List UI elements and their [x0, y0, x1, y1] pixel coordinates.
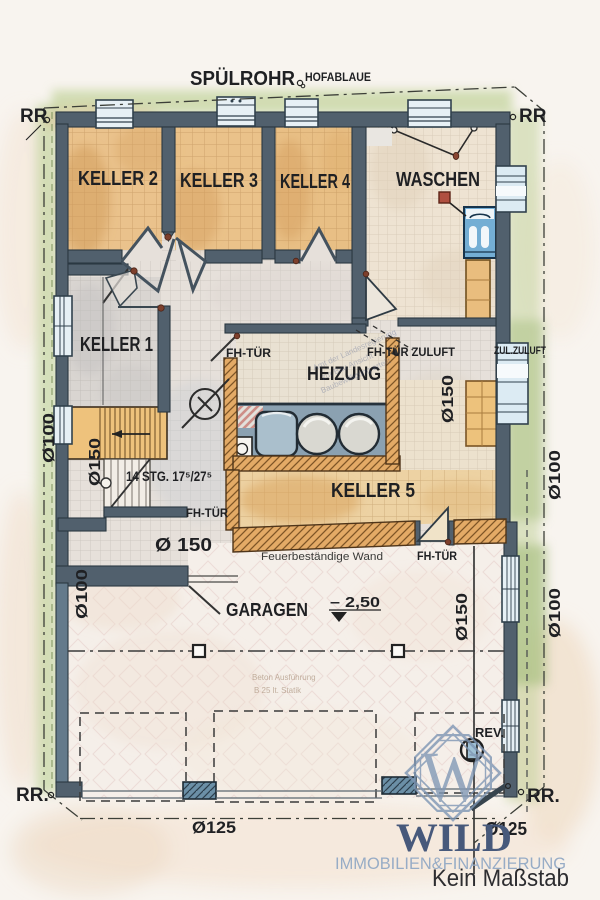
- svg-text:Ø100: Ø100: [547, 450, 564, 500]
- svg-text:Kein Maßstab: Kein Maßstab: [432, 865, 569, 892]
- svg-text:HOFABLAUE: HOFABLAUE: [305, 70, 371, 84]
- svg-text:Ø150: Ø150: [440, 375, 457, 423]
- svg-text:B 25 lt. Statik: B 25 lt. Statik: [254, 686, 302, 695]
- svg-text:Feuerbeständige Wand: Feuerbeständige Wand: [261, 551, 383, 563]
- svg-text:Beton Ausführung: Beton Ausführung: [252, 673, 316, 682]
- svg-text:RR: RR: [519, 106, 547, 127]
- svg-text:Ø100: Ø100: [41, 413, 58, 463]
- svg-text:Ø150: Ø150: [454, 593, 471, 641]
- svg-text:FH-TÜR ZULUFT: FH-TÜR ZULUFT: [367, 344, 456, 359]
- svg-text:RR.: RR.: [527, 786, 560, 807]
- svg-text:RR.: RR.: [16, 785, 49, 806]
- svg-text:14 STG. 17⁵/27⁵: 14 STG. 17⁵/27⁵: [126, 468, 212, 484]
- svg-text:RR: RR: [20, 106, 48, 127]
- svg-text:KELLER 4: KELLER 4: [280, 171, 351, 193]
- svg-text:SPÜLROHR: SPÜLROHR: [190, 67, 296, 90]
- svg-text:GARAGEN: GARAGEN: [226, 600, 308, 620]
- svg-text:– 2,50: – 2,50: [330, 594, 380, 611]
- svg-text:Ø100: Ø100: [74, 569, 91, 619]
- svg-text:KELLER 2: KELLER 2: [78, 168, 158, 190]
- svg-text:Ø150: Ø150: [87, 438, 104, 486]
- svg-text:W: W: [421, 737, 484, 817]
- svg-text:FH-TÜR: FH-TÜR: [226, 345, 271, 360]
- svg-text:WASCHEN: WASCHEN: [396, 169, 480, 191]
- svg-text:KELLER 5: KELLER 5: [331, 480, 415, 502]
- svg-text:Ø100: Ø100: [547, 588, 564, 638]
- svg-text:FH-TÜR: FH-TÜR: [186, 505, 228, 520]
- svg-text:Ø125: Ø125: [192, 818, 236, 837]
- svg-text:ZUL.ZULUFT: ZUL.ZULUFT: [494, 345, 546, 357]
- svg-text:Ø 150: Ø 150: [155, 535, 212, 555]
- svg-text:FH-TÜR: FH-TÜR: [417, 548, 457, 563]
- svg-text:KELLER 3: KELLER 3: [180, 170, 258, 192]
- svg-text:KELLER 1: KELLER 1: [80, 334, 153, 356]
